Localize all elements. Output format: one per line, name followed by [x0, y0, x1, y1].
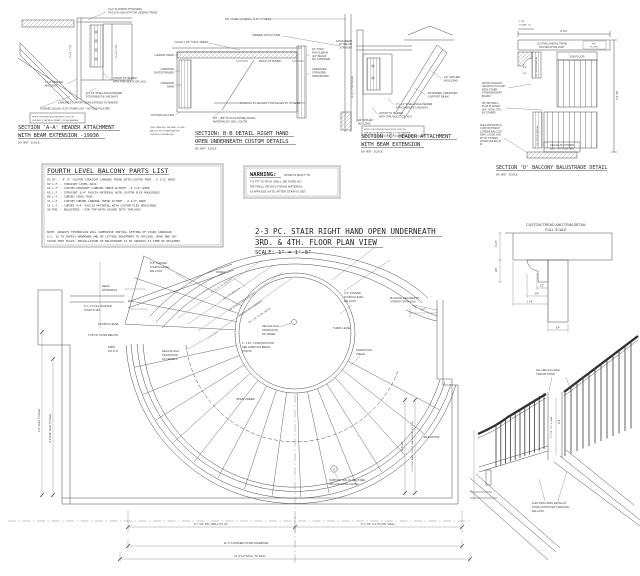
- parts-note: G.C. IS TO SUPPLY MANPOWER AND OR LIFTIN…: [47, 235, 177, 239]
- laminate-strip: [179, 60, 191, 108]
- loose-note: THIS TRIM WILL BE SENT LOOSE: [150, 127, 185, 129]
- label-back-of-riser: BACK OF RISER: [259, 59, 281, 63]
- dim-label: 5'-7 1/2" FIN. WALL TO C/L: [194, 522, 229, 526]
- label-construction: SEE JAMB FOR BREAK: [242, 345, 271, 349]
- callout-solid-tread: SOLID 1 1/4" THICK TREAD: [175, 40, 208, 44]
- label-construction: 2 - 3 PC. CONSTRUCTION: [242, 341, 274, 345]
- callout-attach: WITH THRU BOLTS OR LAGS: [113, 81, 146, 84]
- dim-label: 3/4": [523, 73, 527, 75]
- label-helical-rail: NO NEWELS: [162, 357, 178, 361]
- callout-stringer: STRINGER/: [312, 71, 326, 75]
- label-support-walls: WITH WOOD BLOCKING: [329, 482, 359, 486]
- label-stair-number: DN 17 R: [108, 349, 118, 353]
- dim-label: 5/8": [523, 67, 527, 69]
- dim-label: 9'-6 1/2": [400, 441, 404, 451]
- label-construction: POINTS: [242, 349, 252, 353]
- callout-fascia: STRINGER: [340, 46, 353, 49]
- callout-veneer: VENEER TOP NO TRIM: [252, 33, 280, 37]
- callout-attach: WITH THRU BOLTS OR LAGS: [379, 115, 412, 118]
- dim-label: 11'-4 1/2" RGH. TO RGH.: [234, 554, 266, 558]
- warning-text: TO FIT TO RGH. WALL. BE SURE NO: [250, 180, 302, 184]
- label-curved-balcony: 8'-8" CURVED: [150, 261, 167, 265]
- tread-line: [134, 278, 238, 314]
- label-flex-moulding: BALCONY: [532, 509, 545, 513]
- section-b-detail: FIN. PANEL MATERIAL IS BY OTHERS VENEER …: [150, 14, 351, 151]
- callout-molding: 1 1/2" APPLIED: [45, 80, 63, 84]
- callout-drywall: BY OTHERS: [482, 112, 496, 115]
- loose-note: AND FIT BY OTHERS AFTER: [150, 130, 180, 133]
- label-wood-fascia: 3/4" WOOD FASCIA: [535, 57, 538, 77]
- dim-label: 1 1/4": [527, 301, 533, 304]
- drawing-sheet: 3-1/4" FLOORING THICKNESS THIS IS FLUSH …: [0, 0, 640, 576]
- label-landing-tread: ROUTED AT BALCONY: [539, 46, 565, 49]
- stair-shop-drawing: 3-1/4" FLOORING THICKNESS THIS IS FLUSH …: [0, 0, 640, 576]
- parts-note: NOTE: ARCWAYS TECHNICIAN WILL SUPERVISE …: [47, 230, 172, 234]
- parts-item: 30 POS. - BALUSTERS : PIN TOP WITH LAGGE…: [47, 208, 141, 212]
- label-support-walls: SUPPORT WALLS ARE STEEL: [329, 478, 366, 482]
- dim-label: 1 1/4": [494, 240, 498, 247]
- baluster-lines: [496, 393, 544, 467]
- label-transition-tread: TRANSITION: [356, 348, 372, 352]
- newel-base: [486, 470, 491, 485]
- section-d-scale: DO NOT SCALE: [496, 173, 518, 177]
- label-helical-rail: TRANSITION: [162, 353, 178, 357]
- walk-line: [186, 345, 398, 442]
- label-transition-tread: TREAD: [356, 352, 365, 356]
- rail-transition-marker: [292, 320, 297, 325]
- tread-line: [297, 393, 301, 497]
- label-wood-fascia: 3/4" WOOD FASCIA: [536, 126, 539, 146]
- baluster-lines: [565, 342, 631, 456]
- dim-label: 5'-7 1/2" C/L TO FIN. WALL: [361, 522, 396, 526]
- section-d-title: SECTION 'D' BALCONY BALUSTRADE DETAIL: [496, 165, 607, 171]
- label-gc-fill: G.C. TO FILL IN AFTER: [84, 304, 112, 308]
- floor-plan-view: 8'-8" CURVED FOURTH LEVEL BALCONY OPEN B…: [8, 248, 474, 563]
- access-note: CEILING TO ATTACH STAIR TO THE HEADER: [32, 119, 79, 122]
- warning-text: DRYWALL OR ANY FINISH MATERIAL: [250, 185, 303, 189]
- tread-detail-scale: FULL SCALE: [545, 228, 567, 232]
- drawing-subtitle: 3RD. & 4TH. FLOOR PLAN VIEW: [255, 238, 377, 247]
- callout-applied-moulding: MOULDING: [358, 122, 371, 125]
- tread-line: [135, 345, 237, 367]
- tread-line: [327, 384, 382, 472]
- label-elevator: ELEVATOR: [424, 435, 440, 439]
- warning-text: IS APPLIED UNTIL AFTER STAIR IS SET.: [250, 190, 307, 194]
- callout-stringer: SKIRTBOARD: [312, 74, 329, 78]
- section-c-subtitle: WITH BEAM EXTENSION: [361, 142, 420, 148]
- callout-skirt: SKIRT/STRINGER: [154, 72, 174, 75]
- tread-line: [128, 301, 236, 322]
- molding-profile: [527, 260, 548, 282]
- stringer-strip: [297, 46, 306, 118]
- label-curved-balcony: FOURTH LEVEL: [344, 295, 364, 299]
- warning-heading: WARNING:: [250, 172, 277, 178]
- section-c-scale: DO NOT SCALE: [361, 150, 383, 154]
- tread-line: [307, 392, 329, 494]
- section-a-subtitle: WITH BEAM EXTENSION -19936: [18, 133, 99, 139]
- callout-wood-fascia: BOARD: [482, 95, 491, 98]
- label-subfloor: SUB FLOOR: [570, 55, 585, 59]
- warning-box: WARNING: STAIR IS BUILT TO TO FIT TO RGH…: [244, 166, 340, 198]
- label-gc-fill: STAIR IS SET: [84, 308, 101, 312]
- parts-note: STAIR INTO PLACE. INSTALLATION OF BALUST…: [47, 239, 180, 243]
- section-c-detail: FASCIA BEAM 1/2" BELOW STRINGER 11 1/2" …: [336, 26, 460, 154]
- riser-block: [548, 260, 568, 322]
- callout-applied-moulding: 1/2" APPLIED: [444, 75, 460, 79]
- label-furring: FURRING BY ARCWAYS INSTALLED BY OTHERS: [240, 101, 300, 105]
- dim-label: 15 1/2" (TYP): [116, 45, 118, 58]
- label-blocking: OTHERS FOR NAILING: [390, 301, 416, 304]
- tread-line: [173, 373, 250, 443]
- label-fin-floor: FLOOR: [590, 47, 598, 49]
- label-flex-moulding: STAIR CONTINUES THROUGH: [532, 505, 569, 509]
- callout-flooring: THIS IS FLUSH WITH TOP LANDING TREAD: [108, 12, 157, 15]
- support-beam-hatch: [341, 112, 351, 130]
- tread-trim-detail: CUSTOM TREAD AND TRIM DETAIL FULL SCALE …: [494, 223, 612, 332]
- dim-label: 1/2": [540, 285, 544, 288]
- drawing-title-block: 2-3 PC. STAIR RIGHT HAND OPEN UNDERNEATH…: [255, 227, 442, 256]
- callout-extended-beam: EXTENDED LAMINATED: [428, 91, 458, 95]
- callout-lam-beam: BEAM: [167, 86, 174, 89]
- label-helical-rail: HELICAL RAIL: [162, 349, 180, 353]
- header-laminate-hatch: [367, 58, 380, 90]
- callout-stringer: LAMINATED: [312, 67, 327, 71]
- callout-extended-beam: SUPPORT BEAM: [428, 95, 449, 99]
- label-helical-transitions: TRANSITIONS: [536, 372, 555, 376]
- label-curved-balcony: 3'-0" CURVED: [344, 291, 361, 295]
- callout-flex-moulding: IN: [480, 143, 483, 146]
- section-c-title: SECTION 'C' HEADER ATTACHMENT: [361, 134, 452, 140]
- radius-label: R4'-10 1/4" TO MOLDING: [211, 278, 233, 294]
- section-d-detail: 2 7/8" TO BAL. C/L 8 1/4" CUSTOM LANDING…: [480, 21, 619, 177]
- ceiling-hatch: [527, 152, 577, 158]
- framing-lines: [557, 60, 597, 107]
- section-a-scale: DO NOT SCALE: [18, 141, 40, 145]
- dim-label: 3/4": [494, 267, 498, 272]
- callout-plaster: MATERIAL BY GEN. CONTR.: [213, 120, 248, 124]
- railing-elevation: ALL HELICAL RAIL TRANSITIONS 3'-6" 1'-5 …: [470, 336, 640, 560]
- dim-label: 1'-5 7/8" TO T.O. RAIL: [550, 416, 553, 438]
- tread-line: [125, 324, 235, 330]
- label-stair-number: 19957: [108, 345, 116, 349]
- section-a-detail: 3-1/4" FLOORING THICKNESS THIS IS FLUSH …: [18, 8, 157, 145]
- dim-label: 5'-7" RGH. WALL TO RGH. BALCONY AT 4TH F…: [411, 420, 414, 471]
- label-top-of-stair: TOP OF STAIR BELOW: [88, 333, 118, 337]
- section-b-subtitle: OPEN UNDERNEATH CUSTOM DETAILS: [195, 139, 288, 145]
- tread-line: [272, 392, 286, 495]
- dim-label: 3'-6": [557, 419, 561, 424]
- label-beam-extension: EXTENSION: [102, 288, 117, 292]
- parts-list-title: FOURTH LEVEL BALCONY PARTS LIST: [47, 167, 168, 175]
- access-note: NOTE: PROVIDE ACCESS AT FLOOR OR: [364, 128, 406, 131]
- section-b-scale: DO NOT SCALE: [195, 147, 217, 151]
- parts-list: FOURTH LEVEL BALCONY PARTS LIST 01 PC. -…: [42, 164, 223, 247]
- callout-landing-tread: LANDING TREAD: [155, 54, 175, 57]
- label-open-under: OPEN UNDER: [236, 397, 255, 401]
- callout-fin-panel: FIN. PANEL MATERIAL IS BY OTHERS: [225, 17, 271, 21]
- dim-label: 2'-9 7/8": [615, 90, 619, 100]
- dim-label: 2 7/8": [519, 21, 525, 23]
- callout-flex-moulding: AFTER CEILING IS: [480, 140, 501, 143]
- label-fin-floor: FIN.: [592, 44, 597, 46]
- callout-angle: ATTACHMENT BY ARCWAYS: [86, 96, 119, 99]
- tread-line: [335, 378, 405, 455]
- dim-label: 3/4": [535, 293, 539, 296]
- dim-label: 16 1/4" (TYP): [70, 45, 72, 58]
- drawing-scale: SCALE: 1" = 1'-0": [255, 250, 311, 256]
- label-curved-balcony: BALCONY: [150, 269, 163, 273]
- drawing-title: 2-3 PC. STAIR RIGHT HAND OPEN UNDERNEATH: [255, 227, 436, 236]
- callout-molding: MOLDING: [45, 84, 57, 88]
- tread-line: [143, 355, 239, 394]
- section-b-title: SECTION: B-B DETAIL RIGHT HAND: [195, 131, 288, 137]
- header-laminate-hatch: [90, 25, 103, 67]
- label-third-level: THIRD LEVEL: [333, 326, 351, 330]
- label-fourth-level: FOURTH LEVEL: [98, 322, 120, 326]
- section-b-marker-letter: B: [333, 469, 335, 472]
- label-helical-rail: HELICAL RAIL: [262, 324, 280, 328]
- label-open: OPEN: [216, 270, 225, 274]
- callout-fascia-beam: FIN. STRINGER): [312, 58, 331, 61]
- callout-angle: ATTACHMENT BY ARCWAYS: [396, 106, 429, 109]
- radius-label: R4'-7" TO WALL C/L: [223, 286, 242, 300]
- dim-label: 4'-8 9/16" RGH. TO RGH.: [48, 413, 52, 443]
- callout-plaster: 3/4" - (5/8" PLUS PLASTER) FINISH: [213, 116, 255, 120]
- stairwell-open-circle: [235, 273, 355, 393]
- framing-lines: [544, 112, 597, 148]
- dim-label: 1'-2": [421, 308, 426, 311]
- label-helical-rail: NO NEWEL: [262, 332, 276, 336]
- callout-ceiling: FINISHED CEILING IS BY OTHERS (3/4" - 5/…: [40, 108, 110, 111]
- label-ceiling: (5/8" - 3/4" PLASTER): [550, 148, 574, 151]
- label-beam-extension: BEAM: [102, 284, 109, 288]
- label-curved-balcony: BALCONY: [344, 299, 357, 303]
- dim-label: 3/4": [556, 327, 560, 330]
- tread-line: [156, 365, 244, 420]
- flooring-hatch: [22, 20, 74, 27]
- callout-flex-trim: CUSTOM FLEX TRIM: [151, 114, 174, 117]
- dim-label: 8 1/4": [560, 29, 567, 33]
- tread-hatch: [177, 52, 297, 58]
- callout-beam: LAMINATED SUPPORT BEAM EXTENDS TO HEADER: [58, 102, 118, 105]
- tread-line: [348, 361, 440, 410]
- callout-applied-moulding: MOULDING: [444, 79, 458, 83]
- label-helical-rail: TRANSITION: [262, 328, 278, 332]
- dim-label: 11'-3" FINISHED STAIR DIAMETER: [224, 541, 269, 545]
- tread-slab: [513, 233, 612, 260]
- section-a-title: SECTION 'A-A' HEADER ATTACHMENT: [18, 125, 115, 131]
- tread-detail-title: CUSTOM TREAD AND TRIM DETAIL: [526, 223, 586, 227]
- dim-label: 11 1/2" (TYP) CEILING: [352, 75, 354, 98]
- dim-label: TO BAL. C/L: [519, 24, 532, 27]
- access-note: NOTE: PROVIDE ACCESS AT FLOOR OR: [32, 116, 74, 119]
- label-flex-moulding: FLEX MOULDING DETAIL AT: [532, 501, 567, 505]
- dimension-ticks: [40, 330, 472, 561]
- warning-text: STAIR IS BUILT TO: [284, 173, 311, 177]
- molding-profile: [518, 52, 532, 66]
- loose-note: CEILING IS INSTALLED: [150, 133, 174, 136]
- dim-label: 9'-4" RGH. TO RGH.: [37, 408, 41, 432]
- label-curved-balcony: FOURTH LEVEL: [150, 265, 170, 269]
